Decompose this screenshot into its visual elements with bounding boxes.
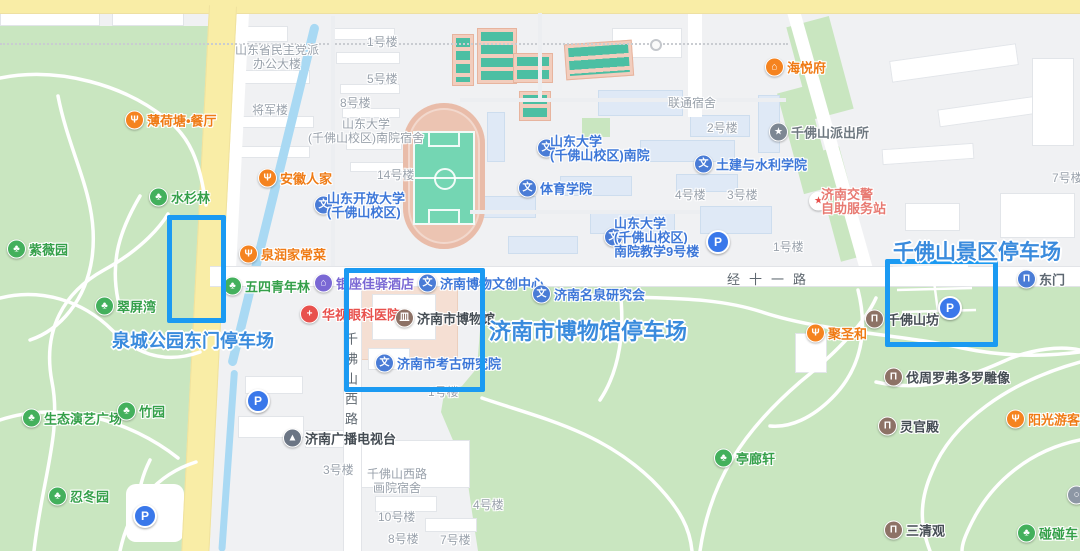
- sport-court: [519, 91, 551, 121]
- building-label: 3号楼: [323, 463, 354, 477]
- generic-icon: ○: [1067, 486, 1080, 505]
- poi-label: 济南名泉研究会: [554, 285, 645, 304]
- tree-icon: ♣: [117, 402, 136, 421]
- poi-tree[interactable]: ♣亭廊轩: [714, 449, 775, 468]
- poi-institution[interactable]: 文济南名泉研究会: [532, 285, 645, 304]
- sport-court: [564, 40, 634, 81]
- poi-restaurant[interactable]: Ψ泉润家常菜: [239, 245, 326, 264]
- tree-icon: ♣: [7, 240, 26, 259]
- building: [480, 196, 536, 218]
- poi-label: 水杉林: [171, 188, 210, 207]
- police-icon: ★: [769, 123, 788, 142]
- poi-label: 五四青年林: [245, 277, 310, 296]
- parking-icon[interactable]: P: [246, 389, 270, 413]
- poi-tree[interactable]: ♣竹园: [117, 402, 165, 421]
- building-label: 5号楼: [367, 72, 398, 86]
- poi-label: 忍冬园: [70, 487, 109, 506]
- road-label-jingshiyilu: 经十一路: [727, 269, 815, 288]
- poi-label: 阳光游客餐厅: [1028, 410, 1080, 429]
- goal-box: [428, 133, 460, 147]
- hospital-icon: +: [300, 305, 319, 324]
- canal: [218, 370, 238, 551]
- poi-school[interactable]: 文土建与水利学院: [694, 155, 807, 174]
- goal-box: [428, 209, 460, 223]
- building-label: 8号楼: [340, 96, 371, 110]
- building-label: 8号楼: [388, 532, 419, 546]
- poi-generic[interactable]: ○: [1067, 486, 1080, 505]
- building-label: 14号楼: [377, 168, 414, 182]
- building-label: 3号楼: [727, 188, 758, 202]
- poi-restaurant[interactable]: Ψ阳光游客餐厅: [1006, 410, 1080, 429]
- poi-label: 紫薇园: [29, 240, 68, 259]
- temple-icon: Π: [884, 521, 903, 540]
- poi-label: 山东开放大学(千佛山校区): [327, 192, 405, 220]
- statue-icon: Π: [884, 368, 903, 387]
- house-icon: ⌂: [765, 58, 784, 77]
- poi-tree[interactable]: ♣生态演艺广场: [22, 409, 122, 428]
- building: [905, 203, 960, 231]
- restaurant-icon: Ψ: [1006, 410, 1025, 429]
- building-label: 1号楼: [773, 240, 804, 254]
- poi-label: 土建与水利学院: [716, 155, 807, 174]
- annotation-label: 泉城公园东门停车场: [112, 327, 274, 353]
- jinan-museum-parking-box[interactable]: [344, 268, 485, 392]
- tree-icon: ♣: [149, 188, 168, 207]
- building: [889, 43, 1019, 83]
- poi-label: 灵官殿: [900, 417, 939, 436]
- map-canvas[interactable]: 经十一路 千佛山西路 Ψ薄荷塘•餐厅♣水杉林♣紫薇园♣翠屏湾♣五四青年林♣生态演…: [0, 0, 1080, 551]
- poi-tree[interactable]: ♣翠屏湾: [95, 297, 156, 316]
- building: [937, 95, 1046, 128]
- poi-label: 安徽人家: [280, 169, 332, 188]
- building: [240, 146, 310, 158]
- building-label: 2号楼: [707, 121, 738, 135]
- building: [1032, 58, 1074, 146]
- poi-statue[interactable]: Π伐周罗弗多罗雕像: [884, 368, 1010, 387]
- poi-label: 山东大学(千佛山校区)南院教学9号楼: [614, 217, 699, 259]
- poi-tv[interactable]: ▲济南广播电视台: [283, 429, 396, 448]
- parking-icon[interactable]: P: [133, 504, 157, 528]
- boundary-node: [650, 39, 662, 51]
- building: [487, 112, 505, 162]
- poi-tree[interactable]: ♣忍冬园: [48, 487, 109, 506]
- school-icon: 文: [518, 179, 537, 198]
- poi-bumper-car[interactable]: ♣碰碰车: [1017, 524, 1078, 543]
- restaurant-icon: Ψ: [806, 324, 825, 343]
- gate-icon: Π: [1017, 270, 1036, 289]
- building-label: 7号楼: [1052, 171, 1080, 185]
- archway-icon: Π: [865, 310, 884, 329]
- building-label: 4号楼: [473, 498, 504, 512]
- poi-temple[interactable]: Π三清观: [884, 521, 945, 540]
- building-label: 千佛山西路画院宿舍: [367, 467, 427, 495]
- poi-label: 海悦府: [787, 58, 826, 77]
- poi-school[interactable]: 文体育学院: [518, 179, 592, 198]
- poi-house[interactable]: ⌂海悦府: [765, 58, 826, 77]
- temple-icon: Π: [878, 417, 897, 436]
- poi-restaurant[interactable]: Ψ聚圣和: [806, 324, 867, 343]
- restaurant-icon: Ψ: [239, 245, 258, 264]
- tree-icon: ♣: [714, 449, 733, 468]
- poi-label: 泉润家常菜: [261, 245, 326, 264]
- poi-label: 山东大学(千佛山校区)南院: [550, 135, 650, 163]
- poi-tree[interactable]: ♣紫薇园: [7, 240, 68, 259]
- poi-label: 千佛山派出所: [791, 123, 869, 142]
- hotel-icon: ⌂: [314, 274, 333, 293]
- tree-icon: ♣: [22, 409, 41, 428]
- poi-label: 济南交警自助服务站: [821, 188, 886, 216]
- building: [882, 143, 975, 165]
- building-label: 山东省民主党派办公大楼: [235, 43, 319, 71]
- soccer-field: [413, 131, 475, 225]
- school-icon: 文: [694, 155, 713, 174]
- poi-label: 伐周罗弗多罗雕像: [906, 368, 1010, 387]
- bumper-car-icon: ♣: [1017, 524, 1036, 543]
- building: [508, 236, 578, 254]
- poi-label: 竹园: [139, 402, 165, 421]
- restaurant-icon: Ψ: [125, 111, 144, 130]
- poi-police[interactable]: ★千佛山派出所: [769, 123, 869, 142]
- quancheng-park-east-gate-parking-box[interactable]: [167, 215, 226, 323]
- building: [425, 518, 477, 532]
- poi-label: 三清观: [906, 521, 945, 540]
- poi-gate[interactable]: Π东门: [1017, 270, 1065, 289]
- poi-label: 生态演艺广场: [44, 409, 122, 428]
- top-road: [0, 0, 1080, 14]
- building-label: 联通宿舍: [668, 96, 716, 110]
- poi-label: 聚圣和: [828, 324, 867, 343]
- qianfoshan-scenic-parking-box[interactable]: [885, 259, 998, 347]
- poi-tree[interactable]: ♣五四青年林: [223, 277, 310, 296]
- poi-label: 体育学院: [540, 179, 592, 198]
- poi-label: 济南广播电视台: [305, 429, 396, 448]
- poi-label: 东门: [1039, 270, 1065, 289]
- poi-restaurant[interactable]: Ψ薄荷塘•餐厅: [125, 111, 217, 130]
- tree-icon: ♣: [95, 297, 114, 316]
- poi-tree[interactable]: ♣水杉林: [149, 188, 210, 207]
- poi-temple[interactable]: Π灵官殿: [878, 417, 939, 436]
- building: [1000, 193, 1075, 238]
- institution-icon: 文: [532, 285, 551, 304]
- poi-label: 碰碰车: [1039, 524, 1078, 543]
- building-label: 10号楼: [378, 510, 415, 524]
- poi-label: 翠屏湾: [117, 297, 156, 316]
- poi-restaurant[interactable]: Ψ安徽人家: [258, 169, 332, 188]
- tree-icon: ♣: [48, 487, 67, 506]
- building-label: 1号楼: [367, 35, 398, 49]
- tv-icon: ▲: [283, 429, 302, 448]
- poi-label: 亭廊轩: [736, 449, 775, 468]
- restaurant-icon: Ψ: [258, 169, 277, 188]
- poi-label: 薄荷塘•餐厅: [147, 111, 217, 130]
- building-label: 7号楼: [440, 533, 471, 547]
- building: [700, 206, 772, 234]
- sport-court: [477, 28, 517, 84]
- sport-court: [452, 34, 474, 86]
- annotation-label: 千佛山景区停车场: [893, 236, 1061, 266]
- building-label: 山东大学(千佛山校区)南院宿舍: [308, 117, 424, 145]
- parking-icon[interactable]: P: [706, 230, 730, 254]
- sport-court: [513, 53, 553, 83]
- building: [336, 52, 400, 64]
- annotation-label: 济南市博物馆停车场: [489, 314, 687, 346]
- building-label: 4号楼: [675, 188, 706, 202]
- building-label: 将军楼: [252, 103, 288, 117]
